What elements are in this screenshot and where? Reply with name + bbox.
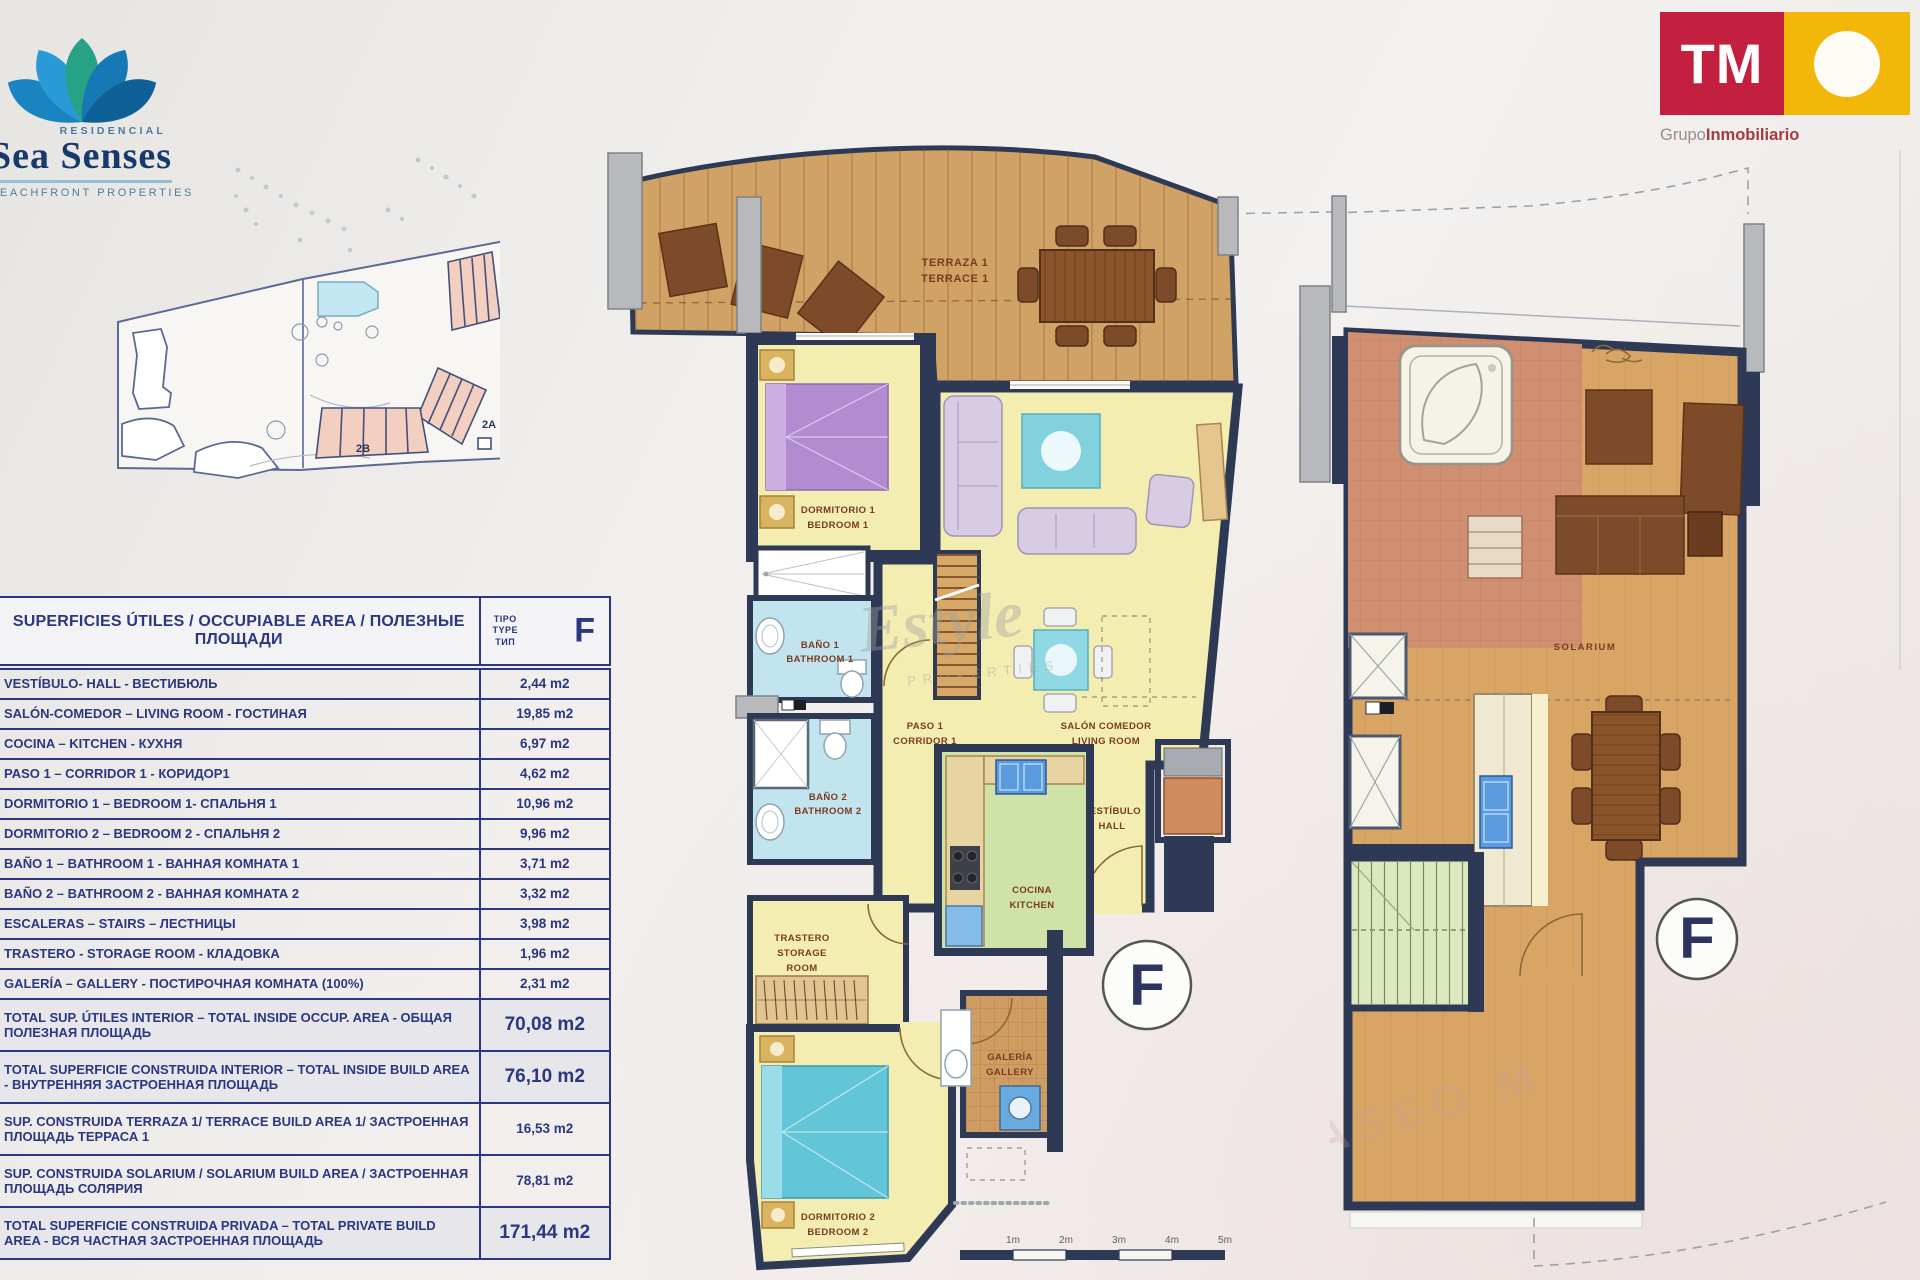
- table-title: SUPERFICIES ÚTILES / OCCUPIABLE AREA / П…: [0, 597, 480, 667]
- unit-badge: F: [1657, 899, 1737, 979]
- svg-text:4m: 4m: [1165, 1235, 1179, 1246]
- table-row-total: TOTAL SUP. ÚTILES INTERIOR – TOTAL INSID…: [0, 999, 610, 1051]
- unit-badge: F: [1103, 941, 1191, 1029]
- svg-text:HALL: HALL: [1099, 821, 1126, 832]
- svg-text:F: F: [1129, 953, 1164, 1018]
- table-row: BAÑO 1 – BATHROOM 1 - ВАННАЯ КОМНАТА 13,…: [0, 849, 610, 879]
- brochure-page: RESIDENCIAL Sea Senses BEACHFRONT PROPER…: [0, 0, 1920, 1280]
- outdoor-sofa: [1556, 496, 1684, 574]
- label-trastero: TRASTERO: [774, 933, 829, 944]
- terrace-edge: [1350, 1212, 1642, 1228]
- table-row-total: TOTAL SUPERFICIE CONSTRUIDA PRIVADA – TO…: [0, 1207, 610, 1259]
- svg-text:1m: 1m: [1006, 1235, 1020, 1246]
- bed-double: [762, 1066, 888, 1198]
- closet: [756, 976, 868, 1024]
- table-row: COCINA – KITCHEN - КУХНЯ6,97 m2: [0, 729, 610, 759]
- svg-text:3m: 3m: [1112, 1235, 1126, 1246]
- dashed-outline: [967, 1148, 1025, 1180]
- bed-double: [766, 384, 888, 490]
- armchair: [1146, 474, 1195, 528]
- svg-text:BATHROOM 2: BATHROOM 2: [794, 806, 861, 817]
- areas-table: SUPERFICIES ÚTILES / OCCUPIABLE AREA / П…: [0, 596, 611, 1260]
- label-bano1: BAÑO 1: [801, 640, 840, 651]
- table-row: BAÑO 2 – BATHROOM 2 - ВАННАЯ КОМНАТА 23,…: [0, 879, 610, 909]
- bedroom-2: DORMITORIO 2 BEDROOM 2: [750, 1022, 952, 1266]
- roof-line: [1344, 306, 1740, 326]
- side-table: [1688, 512, 1722, 556]
- tm-red-square: TM: [1660, 12, 1784, 115]
- kitchenette-counter: [1474, 694, 1548, 906]
- hot-tub: [1400, 346, 1512, 464]
- label-cocina: COCINA: [1012, 885, 1052, 896]
- table-row: GALERÍA – GALLERY - ПОСТИРОЧНАЯ КОМНАТА …: [0, 969, 610, 999]
- elevator: [1158, 742, 1228, 912]
- label-salon: SALÓN COMEDOR: [1061, 720, 1152, 732]
- bathroom-2: BAÑO 2 BATHROOM 2: [750, 716, 874, 862]
- floor-plan-main: TERRAZA 1 TERRACE 1: [590, 140, 1350, 1280]
- site-plan: 1 2A 2B: [60, 145, 500, 485]
- svg-text:BEDROOM 1: BEDROOM 1: [807, 520, 868, 531]
- sofa-2: [1018, 508, 1136, 554]
- label-dormitorio2: DORMITORIO 2: [801, 1212, 875, 1223]
- table-row-total: TOTAL SUPERFICIE CONSTRUIDA INTERIOR – T…: [0, 1051, 610, 1103]
- table-row: DORMITORIO 2 – BEDROOM 2 - СПАЛЬНЯ 29,96…: [0, 819, 610, 849]
- label-dormitorio1: DORMITORIO 1: [801, 505, 876, 516]
- table-row: SUP. CONSTRUIDA TERRAZA 1/ TERRACE BUILD…: [0, 1103, 610, 1155]
- scale-bar: 1m 2m 3m 4m 5m: [960, 1235, 1232, 1260]
- fridge: [946, 906, 982, 946]
- boundary-dashed: [1332, 168, 1748, 214]
- kitchen: COCINA KITCHEN: [938, 748, 1090, 952]
- storage-room: TRASTERO STORAGE ROOM: [750, 898, 908, 1028]
- label-solarium: SOLARIUM: [1554, 642, 1617, 653]
- table-row: PASO 1 – CORRIDOR 1 - КОРИДОР14,62 m2: [0, 759, 610, 789]
- svg-text:5m: 5m: [1218, 1235, 1232, 1246]
- svg-text:2m: 2m: [1059, 1235, 1073, 1246]
- tub-steps: [1468, 516, 1522, 578]
- table-row: TRASTERO - STORAGE ROOM - КЛАДОВКА1,96 m…: [0, 939, 610, 969]
- table-row: SALÓN-COMEDOR – LIVING ROOM - ГОСТИНАЯ19…: [0, 699, 610, 729]
- bedroom-1: DORMITORIO 1 BEDROOM 1: [746, 333, 936, 562]
- door-opening: [1512, 968, 1582, 984]
- confetti-dots: [234, 158, 476, 252]
- label-paso: PASO 1: [907, 721, 944, 732]
- svg-text:ROOM: ROOM: [786, 963, 817, 974]
- table-header-row: SUPERFICIES ÚTILES / OCCUPIABLE AREA / П…: [0, 597, 610, 667]
- table-row: DORMITORIO 1 – BEDROOM 1- СПАЛЬНЯ 110,96…: [0, 789, 610, 819]
- label-galeria: GALERÍA: [987, 1052, 1033, 1063]
- svg-text:BATHROOM 1: BATHROOM 1: [786, 654, 853, 665]
- sink: [996, 760, 1046, 794]
- table-row: SUP. CONSTRUIDA SOLARIUM / SOLARIUM BUIL…: [0, 1155, 610, 1207]
- rug: [1022, 414, 1100, 488]
- svg-text:KITCHEN: KITCHEN: [1009, 900, 1054, 911]
- label-terraza: TERRAZA 1: [922, 257, 989, 269]
- label-bano2: BAÑO 2: [809, 792, 847, 803]
- tm-yellow-square: [1784, 12, 1910, 115]
- svg-text:STORAGE: STORAGE: [777, 948, 827, 959]
- floor-plan-solarium: SOLARIUM: [1330, 140, 1920, 1280]
- svg-text:BEDROOM 2: BEDROOM 2: [807, 1227, 868, 1238]
- table-row: ESCALERAS – STAIRS – ЛЕСТНИЦЫ3,98 m2: [0, 909, 610, 939]
- table-row: VESTÍBULO- HALL - ВЕСТИБЮЛЬ2,44 m2: [0, 667, 610, 699]
- bathroom-1: BAÑO 1 BATHROOM 1: [750, 548, 874, 700]
- peacock-fan-icon: [0, 2, 190, 124]
- sofa: [944, 396, 1002, 536]
- site-label-2a: 2A: [482, 419, 496, 431]
- gallery: GALERÍA GALLERY: [941, 930, 1063, 1203]
- svg-text:TERRACE 1: TERRACE 1: [921, 273, 989, 285]
- site-label-2b: 2B: [356, 443, 370, 455]
- tm-logo: TM GrupoInmobiliario: [1660, 12, 1920, 145]
- svg-text:F: F: [1679, 906, 1714, 971]
- sun-icon: [1814, 31, 1880, 97]
- svg-text:GALLERY: GALLERY: [986, 1067, 1034, 1078]
- hob: [950, 846, 980, 890]
- washing-machine: [1000, 1086, 1040, 1130]
- type-label: TIPO TYPE ТИП: [493, 614, 519, 648]
